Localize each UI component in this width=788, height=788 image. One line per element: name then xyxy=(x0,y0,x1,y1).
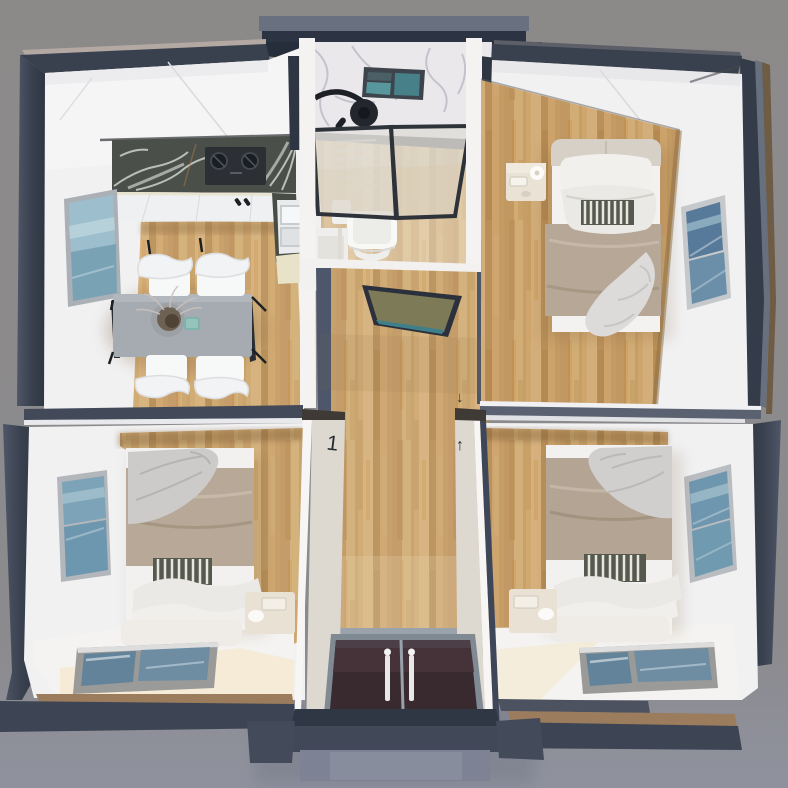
svg-text:↓: ↓ xyxy=(456,389,464,406)
svg-text:↑: ↑ xyxy=(456,437,464,454)
